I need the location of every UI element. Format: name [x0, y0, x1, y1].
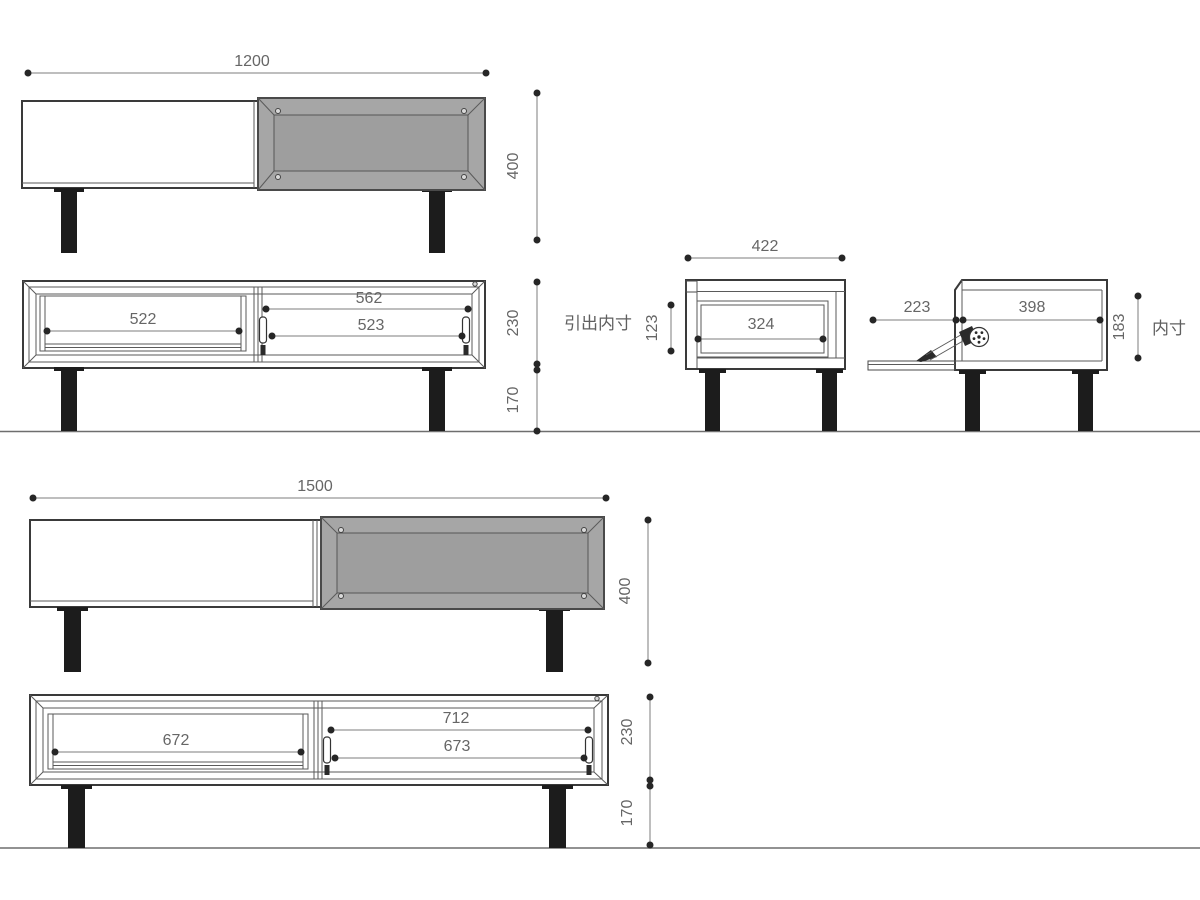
leg [68, 785, 85, 848]
flap-door [321, 517, 604, 609]
dim-body-230: 230 [619, 694, 654, 784]
dim-flap-673: 673 [332, 738, 588, 762]
flap-stay-icon [916, 326, 989, 362]
dim-label: 672 [163, 732, 190, 749]
shelf-pin-icon [473, 282, 477, 286]
view-front-1500: 1500 400 [30, 478, 652, 672]
leg [822, 369, 837, 431]
screw-hole-icon [339, 594, 344, 599]
door-recessed-panel [274, 115, 468, 171]
dim-inner-height-123: 123 [644, 302, 675, 355]
screw-hole-icon [339, 528, 344, 533]
dim-label: 673 [444, 738, 471, 755]
drawing-canvas: 1200 400 [0, 0, 1200, 900]
frame-inner-edge [36, 701, 602, 779]
leg [429, 367, 445, 431]
screw-hole-icon [276, 109, 281, 114]
dim-label: 712 [443, 710, 470, 727]
dim-label: 400 [617, 578, 634, 605]
dim-label: 170 [505, 387, 522, 414]
dim-label: 562 [356, 290, 383, 307]
dim-opening-562: 562 [263, 290, 472, 313]
screw-hole-icon [462, 109, 467, 114]
dim-inner-depth-324: 324 [695, 316, 827, 343]
dim-leg-170: 170 [505, 367, 541, 435]
dim-label: 523 [358, 317, 385, 334]
dim-opening-712: 712 [328, 710, 592, 734]
dim-depth-422: 422 [685, 238, 846, 262]
leg [61, 188, 77, 253]
leg [546, 607, 563, 672]
dim-label: 230 [619, 719, 636, 746]
cabinet-side [955, 280, 1107, 370]
caption-inner: 内寸 [1152, 319, 1186, 338]
dim-label: 1500 [297, 478, 333, 495]
screw-hole-icon [582, 594, 587, 599]
dim-label: 123 [644, 315, 661, 342]
leg [549, 785, 566, 848]
dim-door-reach-223: 223 [870, 299, 960, 324]
view-side-drawer: 422 引出内寸 123 324 [564, 238, 846, 431]
leg [1078, 370, 1093, 431]
leg [64, 607, 81, 672]
dim-label: 183 [1111, 314, 1128, 341]
view-front-1500-open: 672 712 673 230 170 [30, 694, 654, 849]
open-flap-door [868, 361, 955, 370]
dim-drawer-672: 672 [52, 732, 305, 756]
dim-inner-depth-398: 398 [960, 299, 1104, 324]
dim-leg-170: 170 [619, 783, 654, 849]
dim-label: 223 [904, 299, 931, 316]
front-lip [686, 281, 697, 292]
dim-label: 324 [748, 316, 775, 333]
dim-label: 422 [752, 238, 779, 255]
screw-hole-icon [276, 175, 281, 180]
dim-label: 230 [505, 310, 522, 337]
caption-drawer-inner: 引出内寸 [564, 314, 632, 333]
dim-width-1200: 1200 [25, 53, 490, 77]
dim-label: 1200 [234, 53, 270, 70]
screw-hole-icon [462, 175, 467, 180]
leg [965, 370, 980, 431]
dim-flap-523: 523 [269, 317, 466, 340]
dim-label: 522 [130, 311, 157, 328]
view-front-1200: 1200 400 [22, 53, 541, 253]
dim-width-1500: 1500 [30, 478, 610, 502]
dim-inner-height-183: 183 [1111, 293, 1142, 362]
dim-drawer-522: 522 [44, 311, 243, 335]
dim-height-400: 400 [617, 517, 652, 667]
dim-height-400: 400 [505, 90, 541, 244]
view-front-1200-open: 522 562 523 230 170 [23, 279, 541, 435]
screw-hole-icon [582, 528, 587, 533]
hinge-icon [260, 317, 267, 355]
leg [705, 369, 720, 431]
technical-drawing-sheet: 1200 400 [0, 0, 1200, 900]
door-recessed-panel [337, 533, 588, 593]
leg [61, 367, 77, 431]
dim-label: 398 [1019, 299, 1046, 316]
flap-door [258, 98, 485, 190]
leg [429, 188, 445, 253]
shelf-pin-icon [595, 696, 599, 700]
view-side-flap: 223 398 183 内寸 [868, 280, 1186, 431]
hinge-icon [324, 737, 331, 775]
dim-label: 170 [619, 800, 636, 827]
dim-body-230: 230 [505, 279, 541, 368]
dim-label: 400 [505, 153, 522, 180]
